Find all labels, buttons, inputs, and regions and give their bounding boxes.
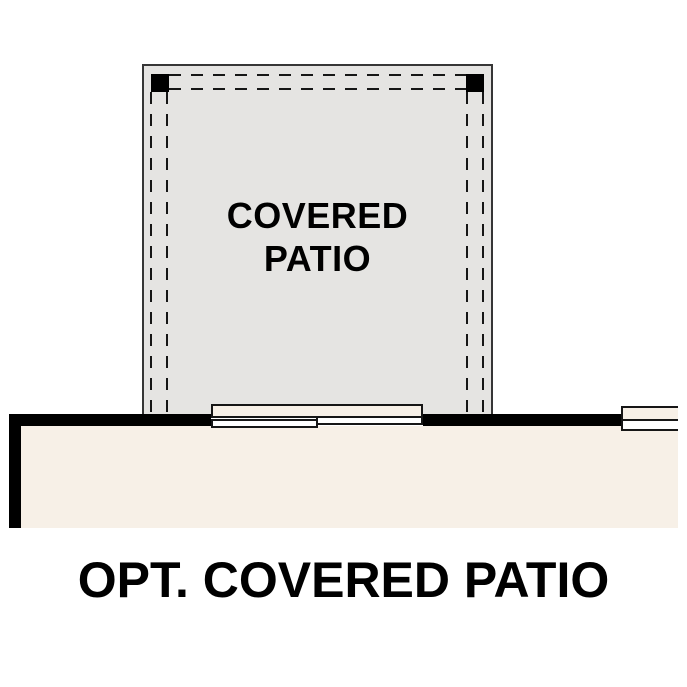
roof-line-top-inner (169, 88, 466, 90)
floor-plan-canvas: COVERED PATIO OPT. COVERED PATIO (0, 0, 687, 687)
roof-line-top-outer (169, 74, 466, 76)
window-right (621, 406, 678, 431)
exterior-wall-left-segment (9, 414, 211, 426)
patio-label-line2: PATIO (142, 237, 493, 280)
patio-label: COVERED PATIO (142, 194, 493, 280)
patio-door-panel-right (316, 416, 423, 425)
plan-title: OPT. COVERED PATIO (0, 550, 687, 610)
patio-door-panel-left (211, 419, 318, 428)
patio-post-right (466, 74, 484, 92)
exterior-wall-right-segment (423, 414, 621, 426)
patio-post-left (151, 74, 169, 92)
patio-label-line1: COVERED (142, 194, 493, 237)
window-right-frame-band (623, 408, 678, 421)
house-interior-floor (21, 426, 678, 528)
window-right-glass-band (623, 421, 678, 429)
exterior-wall-left-return (9, 414, 21, 528)
